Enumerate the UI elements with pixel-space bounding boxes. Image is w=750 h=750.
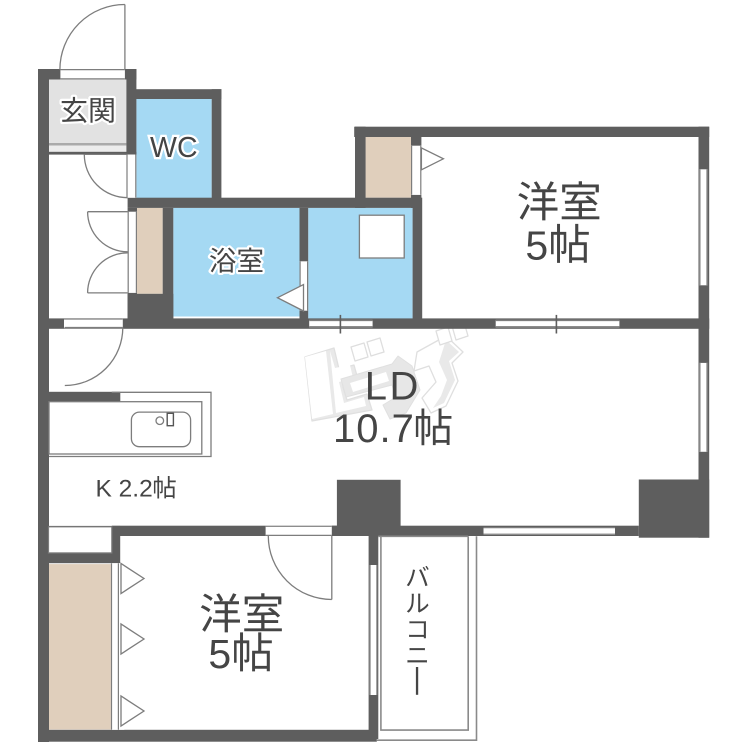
svg-text:5: 5 <box>525 223 548 269</box>
svg-text:WC: WC <box>150 132 197 164</box>
svg-text:10.7: 10.7 <box>333 407 415 451</box>
svg-text:5: 5 <box>208 631 231 677</box>
svg-text:K 2.2: K 2.2 <box>96 476 153 503</box>
svg-text:LD: LD <box>365 365 421 409</box>
